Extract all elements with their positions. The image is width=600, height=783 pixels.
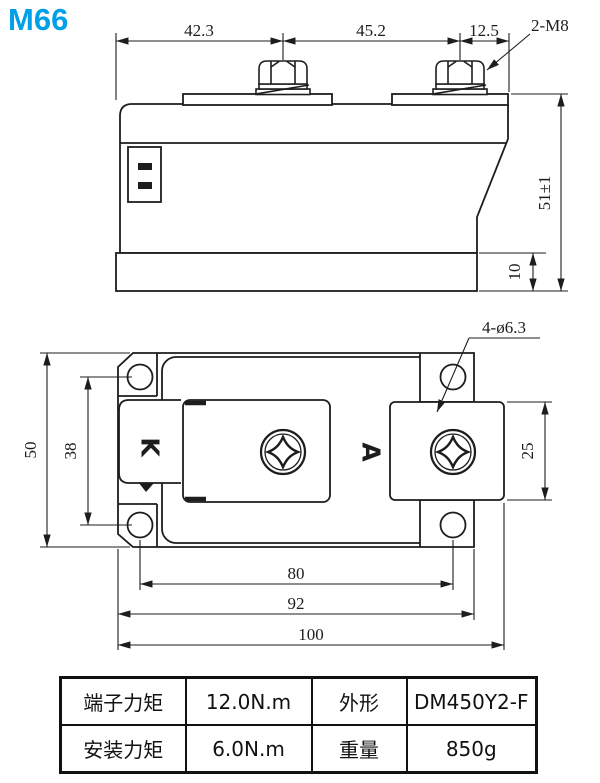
- cathode-pad-side: [183, 94, 332, 105]
- plan-view: 4-ø6.3 K A 50 38 25 80 92 100: [21, 318, 552, 650]
- mounting-hole: [441, 365, 466, 390]
- terminal-screw-anode: [431, 430, 475, 474]
- connector-pin-slot: [138, 182, 152, 189]
- dim-38: 38: [61, 443, 80, 460]
- dim-45-2: 45.2: [356, 21, 386, 40]
- hole-callout: 4-ø6.3: [482, 318, 526, 337]
- terminal-bolt-right: [433, 61, 487, 95]
- dim-92: 92: [288, 594, 305, 613]
- terminal-label-cathode: K: [136, 437, 165, 458]
- outline-value: DM450Y2-F: [407, 678, 537, 726]
- side-view: 42.3 45.2 12.5 2-M8 51±1 10: [116, 16, 569, 291]
- table-row: 端子力矩 12.0N.m 外形 DM450Y2-F: [61, 678, 537, 726]
- weight-label: 重量: [312, 725, 407, 773]
- bolt-callout: 2-M8: [531, 16, 569, 35]
- gate-connector: [128, 147, 161, 202]
- outline-label: 外形: [312, 678, 407, 726]
- cathode-plate: [183, 400, 330, 502]
- drawing-canvas: M66: [0, 0, 600, 783]
- terminal-torque-label: 端子力矩: [61, 678, 186, 726]
- technical-drawing: 42.3 45.2 12.5 2-M8 51±1 10: [0, 0, 600, 668]
- connector-pin-slot: [138, 163, 152, 170]
- dim-25: 25: [518, 443, 537, 460]
- dim-100: 100: [298, 625, 324, 644]
- dim-10: 10: [505, 264, 524, 281]
- terminal-label-anode: A: [357, 442, 386, 462]
- mounting-hole: [441, 513, 466, 538]
- dim-12-5: 12.5: [469, 21, 499, 40]
- weight-value: 850g: [407, 725, 537, 773]
- terminal-torque-value: 12.0N.m: [186, 678, 312, 726]
- terminal-bolt-left: [256, 61, 310, 95]
- table-row: 安装力矩 6.0N.m 重量 850g: [61, 725, 537, 773]
- spec-table: 端子力矩 12.0N.m 外形 DM450Y2-F 安装力矩 6.0N.m 重量…: [59, 676, 538, 774]
- dim-50: 50: [21, 442, 40, 459]
- module-side-body: [116, 94, 508, 291]
- mounting-torque-label: 安装力矩: [61, 725, 186, 773]
- terminal-screw-cathode: [261, 430, 305, 474]
- dim-42-3: 42.3: [184, 21, 214, 40]
- anode-pad-side: [392, 94, 508, 105]
- mounting-torque-value: 6.0N.m: [186, 725, 312, 773]
- dim-51: 51±1: [535, 176, 554, 211]
- dim-80: 80: [288, 564, 305, 583]
- baseplate-side: [116, 253, 477, 291]
- polarity-mark: [139, 483, 154, 492]
